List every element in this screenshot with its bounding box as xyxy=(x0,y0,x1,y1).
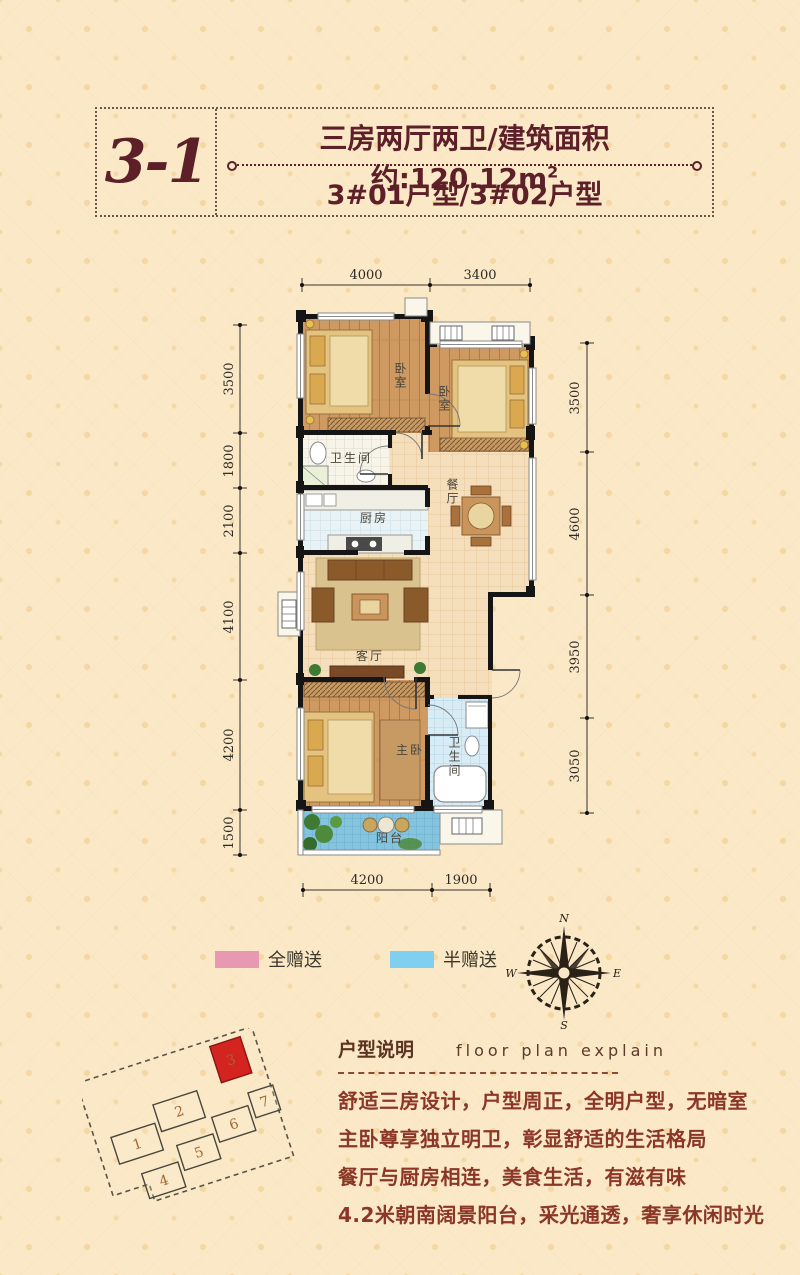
separator-dot-left xyxy=(227,161,237,171)
compass-n: N xyxy=(558,912,569,925)
ac-platform-bottom xyxy=(440,810,502,844)
compass-e: E xyxy=(612,967,621,980)
legend-swatch-half-gift xyxy=(390,951,434,968)
dim-left-3: 2100 xyxy=(222,504,237,537)
explain-title-cn: 户型说明 xyxy=(338,1035,414,1062)
header-box: 3-1 三房两厅两卫/建筑面积约:120.12m2 3#01户型/3#02户型 xyxy=(95,107,714,217)
legend: 全赠送 半赠送 xyxy=(215,946,497,972)
label-living-room: 客厅 xyxy=(356,648,384,663)
dim-right-3: 3950 xyxy=(568,640,583,673)
corridor-floor xyxy=(428,668,492,698)
dim-left-6: 1500 xyxy=(222,816,237,849)
legend-swatch-full-gift xyxy=(215,951,259,968)
wardrobe-bedroom1 xyxy=(328,418,425,432)
label-master-bedroom: 主卧 xyxy=(396,743,424,757)
dim-right-1: 3500 xyxy=(568,381,583,414)
dim-bottom-1: 4200 xyxy=(350,873,383,888)
label-kitchen: 厨房 xyxy=(360,510,388,525)
explain-line-4: 4.2米朝南阔景阳台，采光通透，奢享休闲时光 xyxy=(338,1196,768,1234)
header-separator xyxy=(237,164,692,166)
bed-master xyxy=(304,712,420,802)
compass-s: S xyxy=(560,1019,568,1030)
label-bathroom-1: 卫生间 xyxy=(330,451,372,465)
label-bedroom-1: 卧室 xyxy=(393,362,407,390)
compass-w: W xyxy=(505,967,518,980)
dim-right-2: 4600 xyxy=(568,507,583,540)
explain-line-1: 舒适三房设计，户型周正，全明户型，无暗室 xyxy=(338,1082,768,1120)
flyer-page: 3-1 三房两厅两卫/建筑面积约:120.12m2 3#01户型/3#02户型 xyxy=(0,0,800,1275)
site-plan: 1 2 3 4 5 6 7 xyxy=(82,1028,302,1228)
label-dining-room: 餐厅 xyxy=(445,477,459,506)
compass-rose: N S W E xyxy=(505,912,623,1030)
wardrobe-bedroom2 xyxy=(440,438,529,451)
flue-box xyxy=(405,298,427,316)
legend-label-full-gift: 全赠送 xyxy=(268,946,322,972)
header-divider xyxy=(215,109,217,215)
explain-line-3: 餐厅与厨房相连，美食生活，有滋有味 xyxy=(338,1158,768,1196)
explain-line-2: 主卧尊享独立明卫，彰显舒适的生活格局 xyxy=(338,1120,768,1158)
bed-bedroom1 xyxy=(306,320,372,424)
legend-label-half-gift: 半赠送 xyxy=(443,946,497,972)
header-subtitle: 3#01户型/3#02户型 xyxy=(227,173,702,212)
dim-right-4: 3050 xyxy=(568,749,583,782)
explain-divider xyxy=(338,1072,618,1074)
dim-left-5: 4200 xyxy=(222,728,237,761)
explain-title-en: floor plan explain xyxy=(456,1041,667,1060)
dim-left-2: 1800 xyxy=(222,444,237,477)
separator-dot-right xyxy=(692,161,702,171)
dim-left-4: 4100 xyxy=(222,600,237,633)
dim-bottom-2: 1900 xyxy=(444,873,477,888)
dim-left-1: 3500 xyxy=(222,362,237,395)
label-bathroom-2: 卫生间 xyxy=(447,736,461,778)
dim-top-1: 4000 xyxy=(349,268,382,283)
floor-plan: 卧室 卧室 卫生间 厨房 餐厅 客厅 主卧 卫生间 阳台 40 xyxy=(200,250,640,910)
label-balcony: 阳台 xyxy=(376,830,404,845)
unit-code: 3-1 xyxy=(97,109,215,215)
label-bedroom-2: 卧室 xyxy=(437,385,451,413)
dim-top-2: 3400 xyxy=(463,268,496,283)
floor-plan-explain: 户型说明 floor plan explain 舒适三房设计，户型周正，全明户型… xyxy=(338,1035,768,1234)
wardrobe-master xyxy=(304,682,425,697)
bed-bedroom2 xyxy=(452,350,528,449)
